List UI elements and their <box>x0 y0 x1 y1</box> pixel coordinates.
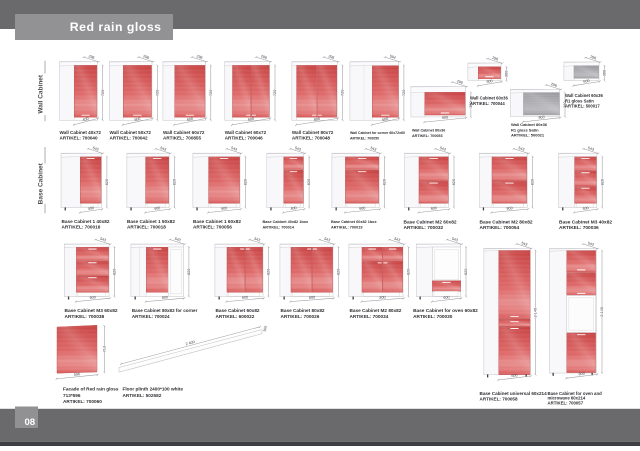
svg-text:ARTIKEL: 700019: ARTIKEL: 700019 <box>331 226 362 230</box>
svg-text:720: 720 <box>341 90 345 96</box>
svg-text:720: 720 <box>209 90 213 96</box>
svg-text:720: 720 <box>101 90 105 96</box>
svg-text:ARTIKEL: 500021: ARTIKEL: 500021 <box>511 133 545 138</box>
svg-text:Base Cabinet for oven 60x82: Base Cabinet for oven 60x82 <box>413 308 478 314</box>
svg-text:820: 820 <box>267 269 271 275</box>
svg-text:Base Cabinet 80x82: Base Cabinet 80x82 <box>281 308 325 313</box>
svg-text:Base Cabinet M2 80x82: Base Cabinet M2 80x82 <box>350 308 402 313</box>
svg-text:Base Cabinet 1 40x82: Base Cabinet 1 40x82 <box>62 219 110 224</box>
svg-text:Base Cabinet M3 40x82: Base Cabinet M3 40x82 <box>559 219 612 225</box>
svg-text:ARTIKEL: 700050: ARTIKEL: 700050 <box>350 137 379 141</box>
svg-text:ARTIKEL: 700030: ARTIKEL: 700030 <box>413 314 453 320</box>
svg-text:Base Cabinet 40x82 1box: Base Cabinet 40x82 1box <box>263 220 309 224</box>
svg-text:ARTIKEL: 500017: ARTIKEL: 500017 <box>565 104 600 109</box>
svg-text:ARTIKEL: 700048: ARTIKEL: 700048 <box>292 136 330 141</box>
svg-text:ARTIKEL: 502582: ARTIKEL: 502582 <box>123 393 162 398</box>
svg-text:600: 600 <box>359 206 366 211</box>
svg-text:600: 600 <box>431 206 438 211</box>
svg-text:720: 720 <box>273 90 277 96</box>
svg-text:Wall Cabinet 80x72: Wall Cabinet 80x72 <box>292 130 334 135</box>
svg-text:ARTIKEL: 700018: ARTIKEL: 700018 <box>127 225 166 230</box>
svg-text:ARTIKEL: 700057: ARTIKEL: 700057 <box>548 400 584 405</box>
svg-text:Wall Cabinet 60x72: Wall Cabinet 60x72 <box>225 130 267 135</box>
svg-text:ARTIKEL: 700036: ARTIKEL: 700036 <box>559 225 599 231</box>
svg-text:ARTIKEL: 700038: ARTIKEL: 700038 <box>65 314 105 320</box>
svg-text:Wall Cabinet 60x36: Wall Cabinet 60x36 <box>470 96 508 101</box>
svg-text:Red rain gloss: Red rain gloss <box>70 20 162 34</box>
svg-text:800: 800 <box>506 206 512 211</box>
svg-text:ARTIKEL: 700014: ARTIKEL: 700014 <box>263 226 295 230</box>
svg-text:820: 820 <box>383 179 387 185</box>
svg-text:800: 800 <box>442 115 449 120</box>
svg-text:820: 820 <box>187 269 191 275</box>
svg-text:500: 500 <box>154 206 161 211</box>
svg-text:600: 600 <box>242 295 248 300</box>
svg-text:820: 820 <box>307 179 311 185</box>
svg-text:Base Cabinet M2 80x82: Base Cabinet M2 80x82 <box>480 219 533 225</box>
svg-text:ARTIKEL: 700056: ARTIKEL: 700056 <box>193 225 232 230</box>
svg-text:ARTIKEL: 700042: ARTIKEL: 700042 <box>110 136 148 141</box>
svg-text:Wall Cabinet 40x72: Wall Cabinet 40x72 <box>60 130 102 135</box>
svg-text:820: 820 <box>243 179 247 185</box>
svg-text:ARTIKEL: 700058: ARTIKEL: 700058 <box>480 396 518 401</box>
svg-text:360: 360 <box>504 71 508 77</box>
svg-text:Wall Cabinet for corner 60x72x: Wall Cabinet for corner 60x72x60 <box>350 131 405 135</box>
svg-text:ARTIKEL: 700044: ARTIKEL: 700044 <box>470 101 505 106</box>
svg-text:360: 360 <box>603 70 607 76</box>
svg-text:ARTIKEL: 700855: ARTIKEL: 700855 <box>163 136 201 141</box>
svg-text:2 140: 2 140 <box>534 308 538 318</box>
svg-text:Wall Cabinet 60x72: Wall Cabinet 60x72 <box>163 130 205 135</box>
svg-text:ARTIKEL: 700053: ARTIKEL: 700053 <box>412 134 443 138</box>
svg-text:820: 820 <box>407 269 411 275</box>
svg-text:800: 800 <box>538 115 545 120</box>
svg-text:Wall Cabinet 80x36: Wall Cabinet 80x36 <box>412 129 445 133</box>
svg-text:Base Cabinet M3 60x82: Base Cabinet M3 60x82 <box>65 308 118 314</box>
svg-text:ARTIKEL: 700026: ARTIKEL: 700026 <box>281 314 320 319</box>
svg-text:600: 600 <box>578 372 585 377</box>
svg-text:820: 820 <box>337 269 341 275</box>
svg-text:713: 713 <box>103 346 107 352</box>
svg-text:Base Cabinet 60x82: Base Cabinet 60x82 <box>216 308 260 313</box>
svg-text:600: 600 <box>89 295 96 300</box>
svg-text:720: 720 <box>155 90 159 96</box>
svg-text:800: 800 <box>162 295 168 300</box>
svg-text:600: 600 <box>511 373 518 378</box>
svg-text:ARTIKEL: 700034: ARTIKEL: 700034 <box>350 314 389 319</box>
svg-text:Wall Cabinet: Wall Cabinet <box>37 74 44 114</box>
svg-text:820: 820 <box>173 179 177 185</box>
svg-text:820: 820 <box>452 179 456 185</box>
svg-text:Base Cabinet: Base Cabinet <box>37 162 44 204</box>
svg-text:600: 600 <box>221 206 228 211</box>
svg-text:Facade of Red rain gloss: Facade of Red rain gloss <box>63 387 119 392</box>
svg-text:600: 600 <box>443 295 450 300</box>
svg-text:Wall Cabinet 60x36: Wall Cabinet 60x36 <box>565 93 603 98</box>
svg-text:ARTIKEL: 700016: ARTIKEL: 700016 <box>62 225 101 230</box>
svg-text:Wall Cabinet 50x72: Wall Cabinet 50x72 <box>110 130 152 135</box>
svg-text:R1 gloss Satin: R1 gloss Satin <box>511 127 539 132</box>
svg-text:820: 820 <box>113 269 117 275</box>
svg-text:Base Cabinet 1 60x82: Base Cabinet 1 60x82 <box>193 219 241 224</box>
svg-text:820: 820 <box>464 269 468 275</box>
svg-text:Base Cabinet universal 60x214: Base Cabinet universal 60x214 <box>480 391 548 396</box>
svg-text:ARTIKEL: 600022: ARTIKEL: 600022 <box>216 314 255 319</box>
svg-text:ARTIKEL: 700040: ARTIKEL: 700040 <box>60 136 98 141</box>
svg-text:713*596: 713*596 <box>63 393 81 398</box>
svg-text:08: 08 <box>24 417 35 428</box>
svg-text:ARTIKEL: 700060: ARTIKEL: 700060 <box>63 399 102 404</box>
svg-text:Base Cabinet 1 50x82: Base Cabinet 1 50x82 <box>127 219 175 224</box>
svg-text:ARTIKEL: 700032: ARTIKEL: 700032 <box>404 225 444 231</box>
svg-text:596: 596 <box>74 372 81 377</box>
svg-text:800: 800 <box>379 295 385 299</box>
svg-text:ARTIKEL: 700024: ARTIKEL: 700024 <box>132 314 170 319</box>
svg-text:ARTIKEL: 700054: ARTIKEL: 700054 <box>480 225 520 231</box>
svg-text:R1 gloss Satin: R1 gloss Satin <box>565 98 594 103</box>
svg-text:820: 820 <box>531 179 535 185</box>
svg-text:720: 720 <box>402 90 406 96</box>
svg-text:800: 800 <box>309 295 315 299</box>
svg-text:2 140: 2 140 <box>600 307 604 317</box>
svg-text:820: 820 <box>600 179 604 185</box>
svg-text:Base Cabinet M2 60x82: Base Cabinet M2 60x82 <box>404 219 457 225</box>
svg-text:Base Cabinet 60x82 1box: Base Cabinet 60x82 1box <box>331 220 377 224</box>
svg-text:Base Cabinet 80x82 for corner: Base Cabinet 80x82 for corner <box>132 308 198 313</box>
svg-text:ARTIKEL: 700046: ARTIKEL: 700046 <box>225 136 263 141</box>
svg-text:Floor plinth 2400*100 white: Floor plinth 2400*100 white <box>123 387 184 392</box>
svg-text:820: 820 <box>105 179 109 185</box>
svg-text:Wall Cabinet 80x36: Wall Cabinet 80x36 <box>511 122 548 127</box>
